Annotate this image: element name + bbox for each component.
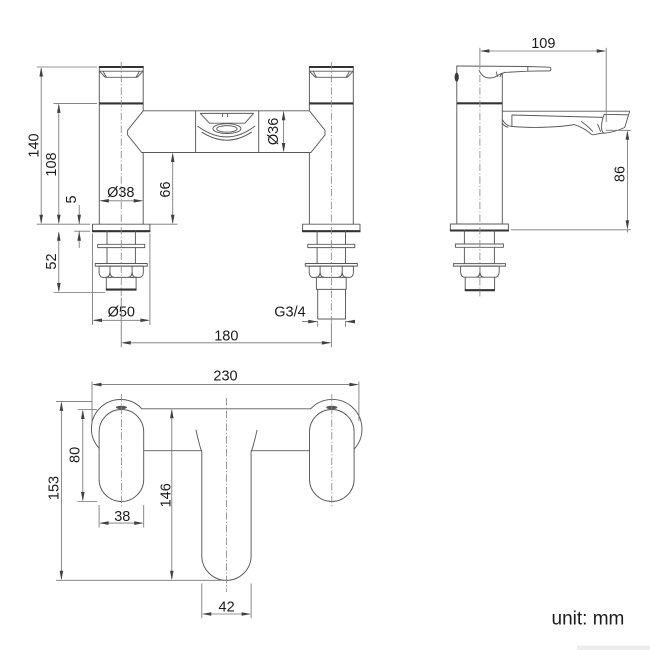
svg-text:180: 180: [214, 329, 238, 345]
svg-text:146: 146: [158, 483, 174, 507]
svg-text:86: 86: [612, 166, 628, 182]
svg-text:G3/4: G3/4: [274, 305, 305, 321]
svg-text:230: 230: [213, 368, 237, 384]
svg-text:109: 109: [531, 36, 555, 52]
svg-text:5: 5: [64, 195, 80, 203]
svg-text:Ø38: Ø38: [107, 185, 134, 201]
svg-text:Ø36: Ø36: [266, 118, 282, 145]
svg-text:140: 140: [26, 133, 42, 157]
svg-text:52: 52: [44, 253, 60, 269]
svg-text:108: 108: [44, 152, 60, 176]
svg-text:153: 153: [46, 476, 62, 500]
svg-text:42: 42: [219, 599, 235, 615]
svg-text:66: 66: [158, 181, 174, 197]
svg-text:38: 38: [114, 509, 130, 525]
svg-text:80: 80: [68, 447, 84, 463]
svg-text:unit: mm: unit: mm: [552, 609, 625, 630]
